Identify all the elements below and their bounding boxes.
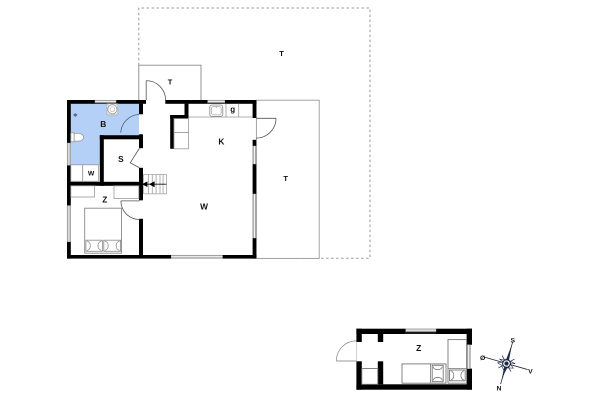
svg-text:T: T <box>283 174 288 183</box>
svg-text:T: T <box>279 49 284 58</box>
svg-text:Z: Z <box>416 343 421 353</box>
svg-text:T: T <box>168 78 173 87</box>
svg-text:S: S <box>118 154 124 164</box>
svg-text:V: V <box>528 368 533 375</box>
svg-text:Z: Z <box>102 195 107 205</box>
svg-text:Ø: Ø <box>480 355 485 362</box>
svg-text:g: g <box>230 105 235 114</box>
svg-text:w: w <box>87 169 95 178</box>
svg-text:B: B <box>100 119 106 129</box>
svg-text:W: W <box>200 201 208 211</box>
svg-text:N: N <box>496 385 501 392</box>
svg-text:K: K <box>218 136 224 146</box>
svg-text:S: S <box>511 338 516 345</box>
